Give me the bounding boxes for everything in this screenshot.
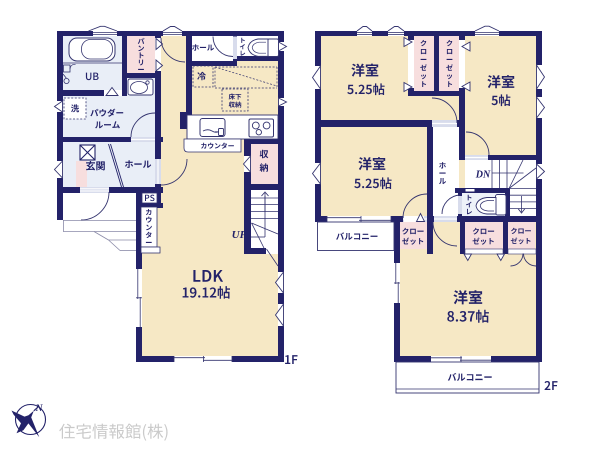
svg-text:DN: DN (475, 170, 491, 181)
svg-text:N: N (35, 404, 44, 414)
svg-text:UP: UP (232, 229, 247, 241)
